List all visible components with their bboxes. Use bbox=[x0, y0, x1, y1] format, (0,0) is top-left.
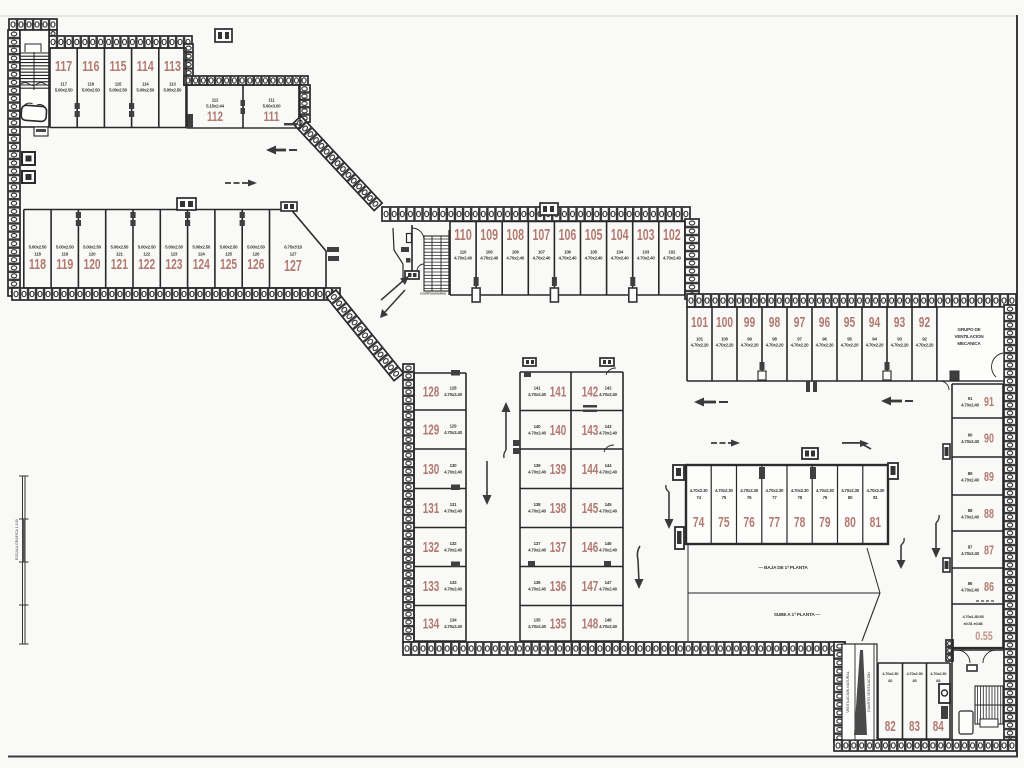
svg-text:112: 112 bbox=[207, 108, 223, 124]
svg-text:142: 142 bbox=[605, 385, 612, 390]
svg-text:120: 120 bbox=[84, 256, 101, 273]
svg-text:111: 111 bbox=[268, 98, 275, 103]
svg-text:5.00x2.50: 5.00x2.50 bbox=[138, 245, 156, 250]
svg-text:132: 132 bbox=[450, 541, 457, 546]
svg-text:98: 98 bbox=[769, 314, 780, 331]
svg-text:126: 126 bbox=[247, 256, 264, 273]
svg-text:5.00x2.50: 5.00x2.50 bbox=[56, 245, 74, 250]
svg-text:142: 142 bbox=[582, 384, 599, 400]
svg-text:98: 98 bbox=[772, 337, 777, 342]
svg-text:4.70x2.40: 4.70x2.40 bbox=[528, 392, 546, 397]
svg-text:140: 140 bbox=[550, 423, 567, 439]
svg-text:4.70x2.30: 4.70x2.30 bbox=[690, 488, 708, 493]
svg-text:4.70x2.20: 4.70x2.20 bbox=[791, 343, 809, 348]
svg-text:4.70x2.30: 4.70x2.30 bbox=[882, 671, 899, 676]
svg-text:6.75x3'18: 6.75x3'18 bbox=[284, 245, 302, 250]
svg-text:81: 81 bbox=[873, 495, 878, 500]
svg-text:4.70x2.40: 4.70x2.40 bbox=[599, 469, 617, 474]
svg-text:0.55: 0.55 bbox=[975, 631, 993, 643]
svg-text:89: 89 bbox=[984, 469, 994, 484]
svg-text:74: 74 bbox=[693, 514, 705, 531]
svg-text:143: 143 bbox=[582, 423, 599, 439]
svg-text:87: 87 bbox=[968, 545, 973, 550]
svg-text:138: 138 bbox=[534, 502, 541, 507]
svg-text:104: 104 bbox=[611, 227, 629, 244]
svg-text:CUARTO BASURAS: CUARTO BASURAS bbox=[420, 292, 446, 296]
svg-text:135: 135 bbox=[550, 616, 567, 632]
svg-text:141: 141 bbox=[550, 384, 567, 400]
svg-text:4.70x2.40: 4.70x2.40 bbox=[444, 548, 462, 553]
svg-text:91: 91 bbox=[968, 396, 973, 401]
svg-text:116: 116 bbox=[82, 58, 99, 75]
svg-text:131: 131 bbox=[423, 501, 440, 517]
svg-text:100: 100 bbox=[716, 314, 733, 331]
svg-text:107: 107 bbox=[533, 227, 551, 244]
svg-text:83: 83 bbox=[909, 719, 920, 735]
svg-text:4.70x2.30: 4.70x2.30 bbox=[740, 488, 758, 493]
svg-text:VENTILACION NATURAL: VENTILACION NATURAL bbox=[846, 671, 850, 712]
svg-text:108: 108 bbox=[506, 227, 524, 244]
svg-text:4.70x2.40: 4.70x2.40 bbox=[961, 515, 979, 520]
svg-text:91: 91 bbox=[984, 394, 994, 409]
svg-text:139: 139 bbox=[534, 463, 541, 468]
svg-text:131: 131 bbox=[450, 502, 457, 507]
svg-text:4.70x2.20: 4.70x2.20 bbox=[816, 343, 834, 348]
svg-text:114: 114 bbox=[137, 58, 155, 75]
svg-text:4.70x2.40: 4.70x2.40 bbox=[444, 430, 462, 435]
svg-text:MECANICA: MECANICA bbox=[957, 341, 981, 346]
svg-text:4.70x2.40: 4.70x2.40 bbox=[599, 548, 617, 553]
svg-text:128: 128 bbox=[450, 386, 457, 391]
svg-text:148: 148 bbox=[605, 617, 612, 622]
svg-text:4.70x2.40: 4.70x2.40 bbox=[637, 256, 655, 261]
svg-text:90: 90 bbox=[968, 433, 973, 438]
svg-text:5.00x2.50: 5.00x2.50 bbox=[247, 245, 265, 250]
svg-text:93: 93 bbox=[894, 314, 905, 331]
svg-text:74: 74 bbox=[696, 495, 701, 500]
svg-text:75: 75 bbox=[722, 495, 727, 500]
svg-text:4.70x2.20: 4.70x2.20 bbox=[716, 343, 734, 348]
svg-text:5.00x2.50: 5.00x2.50 bbox=[192, 245, 210, 250]
svg-text:4.70x2.40: 4.70x2.40 bbox=[528, 430, 546, 435]
svg-text:97: 97 bbox=[794, 314, 805, 331]
svg-text:4.70x2.30: 4.70x2.30 bbox=[867, 488, 885, 493]
svg-text:78: 78 bbox=[794, 514, 805, 531]
svg-text:134: 134 bbox=[423, 616, 440, 632]
svg-text:121: 121 bbox=[111, 256, 128, 273]
svg-text:4.70x2.20: 4.70x2.20 bbox=[866, 343, 884, 348]
svg-text:146: 146 bbox=[605, 541, 612, 546]
svg-text:140: 140 bbox=[534, 424, 541, 429]
svg-text:136: 136 bbox=[534, 580, 541, 585]
svg-text:147: 147 bbox=[582, 579, 599, 595]
svg-text:83: 83 bbox=[912, 678, 917, 683]
svg-text:VENTILACION: VENTILACION bbox=[955, 334, 985, 339]
svg-text:145: 145 bbox=[605, 502, 612, 507]
svg-text:135: 135 bbox=[534, 617, 541, 622]
svg-text:94: 94 bbox=[869, 314, 881, 331]
svg-text:133: 133 bbox=[423, 579, 440, 595]
svg-text:117: 117 bbox=[60, 82, 67, 87]
svg-text:4.70x2.40: 4.70x2.40 bbox=[961, 403, 979, 408]
svg-text:4.70x2.40: 4.70x2.40 bbox=[528, 509, 546, 514]
svg-text:4.70x2.40: 4.70x2.40 bbox=[444, 392, 462, 397]
svg-text:4.70x1.85 85: 4.70x1.85 85 bbox=[963, 614, 985, 619]
svg-text:4.70x2.40: 4.70x2.40 bbox=[961, 588, 979, 593]
svg-text:124: 124 bbox=[193, 256, 211, 273]
svg-text:144: 144 bbox=[605, 463, 612, 468]
svg-text:105: 105 bbox=[585, 227, 603, 244]
svg-text:101: 101 bbox=[696, 337, 703, 342]
svg-text:129: 129 bbox=[423, 423, 440, 439]
svg-text:95: 95 bbox=[847, 337, 852, 342]
svg-text:4.70x2.30: 4.70x2.30 bbox=[766, 488, 784, 493]
svg-text:133: 133 bbox=[450, 580, 457, 585]
svg-text:5.00x2.50: 5.00x2.50 bbox=[165, 245, 183, 250]
svg-text:4.70x2.40: 4.70x2.40 bbox=[663, 256, 681, 261]
svg-text:4.70x2.20: 4.70x2.20 bbox=[741, 343, 759, 348]
svg-text:109: 109 bbox=[480, 227, 498, 244]
svg-text:88: 88 bbox=[984, 506, 994, 521]
svg-text:ESCALA GRAFICA 1:100: ESCALA GRAFICA 1:100 bbox=[15, 519, 19, 560]
svg-text:77: 77 bbox=[769, 514, 780, 531]
svg-text:5.00x2.50: 5.00x2.50 bbox=[109, 88, 127, 93]
svg-text:76: 76 bbox=[743, 514, 754, 531]
svg-text:148: 148 bbox=[582, 616, 599, 632]
svg-text:109: 109 bbox=[486, 250, 493, 255]
svg-text:CUARTO VENTILACION: CUARTO VENTILACION bbox=[867, 672, 871, 712]
svg-text:143: 143 bbox=[605, 424, 612, 429]
svg-text:116: 116 bbox=[88, 82, 95, 87]
svg-text:97: 97 bbox=[797, 337, 802, 342]
svg-text:99: 99 bbox=[744, 314, 755, 331]
svg-text:4.70x2.20: 4.70x2.20 bbox=[841, 343, 859, 348]
svg-text:4.70x2.40: 4.70x2.40 bbox=[961, 551, 979, 556]
svg-text:92: 92 bbox=[922, 337, 927, 342]
svg-text:4.70x2.30: 4.70x2.30 bbox=[907, 671, 924, 676]
svg-text:80: 80 bbox=[844, 514, 855, 531]
svg-text:92: 92 bbox=[919, 314, 930, 331]
svg-text:86: 86 bbox=[984, 579, 994, 594]
svg-text:84: 84 bbox=[933, 719, 944, 735]
svg-text:117: 117 bbox=[55, 58, 72, 75]
svg-text:4.70x2.40: 4.70x2.40 bbox=[532, 256, 550, 261]
svg-text:115: 115 bbox=[109, 58, 126, 75]
svg-text:134: 134 bbox=[450, 617, 457, 622]
svg-text:107: 107 bbox=[538, 250, 545, 255]
svg-text:4.70x2.40: 4.70x2.40 bbox=[585, 256, 603, 261]
svg-text:95: 95 bbox=[844, 314, 855, 331]
svg-text:4.70x2.40: 4.70x2.40 bbox=[444, 624, 462, 629]
svg-text:93: 93 bbox=[897, 337, 902, 342]
svg-text:4.70x2.40: 4.70x2.40 bbox=[559, 256, 577, 261]
svg-text:4.70x2.40: 4.70x2.40 bbox=[528, 469, 546, 474]
svg-text:4.70x2.20: 4.70x2.20 bbox=[916, 343, 934, 348]
svg-text:82: 82 bbox=[885, 719, 896, 735]
svg-text:114: 114 bbox=[142, 82, 149, 87]
svg-text:88: 88 bbox=[968, 508, 973, 513]
svg-text:103: 103 bbox=[637, 227, 655, 244]
svg-text:129: 129 bbox=[450, 424, 457, 429]
svg-text:141: 141 bbox=[534, 385, 541, 390]
svg-text:79: 79 bbox=[823, 495, 828, 500]
svg-text:79: 79 bbox=[819, 514, 830, 531]
svg-text:94: 94 bbox=[872, 337, 877, 342]
svg-text:118: 118 bbox=[29, 256, 46, 273]
svg-text:137: 137 bbox=[550, 540, 567, 556]
svg-text:4.70x2.40: 4.70x2.40 bbox=[528, 548, 546, 553]
svg-text:4.70x2.30: 4.70x2.30 bbox=[841, 488, 859, 493]
svg-text:103: 103 bbox=[642, 250, 649, 255]
svg-text:112: 112 bbox=[212, 98, 219, 103]
svg-text:86: 86 bbox=[968, 581, 973, 586]
svg-text:77: 77 bbox=[772, 495, 777, 500]
svg-text:89: 89 bbox=[968, 471, 973, 476]
svg-text:5.00x2.50: 5.00x2.50 bbox=[220, 245, 238, 250]
svg-text:75: 75 bbox=[718, 514, 729, 531]
svg-text:139: 139 bbox=[550, 462, 567, 478]
svg-text:99: 99 bbox=[747, 337, 752, 342]
svg-text:105: 105 bbox=[590, 250, 597, 255]
svg-text:5.00x2.50: 5.00x2.50 bbox=[82, 88, 100, 93]
svg-text:76: 76 bbox=[747, 495, 752, 500]
svg-text:4.70x2.30: 4.70x2.30 bbox=[791, 488, 809, 493]
svg-text:110: 110 bbox=[460, 250, 467, 255]
svg-text:125: 125 bbox=[220, 256, 237, 273]
svg-text:4.70x2.40: 4.70x2.40 bbox=[454, 256, 472, 261]
svg-text:123: 123 bbox=[165, 256, 182, 273]
svg-text:4.70x2.20: 4.70x2.20 bbox=[891, 343, 909, 348]
svg-text:5.00x2.50: 5.00x2.50 bbox=[164, 88, 182, 93]
svg-text:87: 87 bbox=[984, 543, 994, 558]
svg-text:100: 100 bbox=[721, 337, 728, 342]
svg-text:4.70x2.40: 4.70x2.40 bbox=[599, 509, 617, 514]
svg-text:5.00x2.50: 5.00x2.50 bbox=[55, 88, 73, 93]
svg-text:130: 130 bbox=[423, 462, 440, 478]
svg-text:4.70x2.40: 4.70x2.40 bbox=[599, 587, 617, 592]
svg-text:136: 136 bbox=[550, 579, 567, 595]
svg-text:4.70x2.40: 4.70x2.40 bbox=[528, 624, 546, 629]
svg-text:111: 111 bbox=[264, 108, 280, 124]
svg-text:110: 110 bbox=[454, 227, 472, 244]
svg-text:144: 144 bbox=[582, 462, 599, 478]
svg-text:138: 138 bbox=[550, 501, 567, 517]
svg-text:122: 122 bbox=[138, 256, 155, 273]
svg-text:4.70x2.40: 4.70x2.40 bbox=[599, 392, 617, 397]
svg-text:146: 146 bbox=[582, 540, 599, 556]
svg-text:— BAJA DE 1ª PLANTA: — BAJA DE 1ª PLANTA bbox=[758, 565, 808, 571]
svg-text:4.70x2.40: 4.70x2.40 bbox=[599, 430, 617, 435]
svg-text:147: 147 bbox=[605, 580, 612, 585]
svg-text:4.70x2.40: 4.70x2.40 bbox=[599, 624, 617, 629]
svg-text:84: 84 bbox=[936, 678, 941, 683]
svg-text:145: 145 bbox=[582, 501, 599, 517]
svg-text:4.70x2.20: 4.70x2.20 bbox=[691, 343, 709, 348]
svg-text:4.70x2.40: 4.70x2.40 bbox=[528, 587, 546, 592]
svg-text:4.70x2.40: 4.70x2.40 bbox=[480, 256, 498, 261]
svg-text:GRUPO DE: GRUPO DE bbox=[958, 327, 981, 332]
svg-text:108: 108 bbox=[512, 250, 519, 255]
svg-text:4.70x2.40: 4.70x2.40 bbox=[444, 469, 462, 474]
svg-text:4.70x2.30: 4.70x2.30 bbox=[816, 488, 834, 493]
svg-text:4.70x2.20: 4.70x2.20 bbox=[766, 343, 784, 348]
svg-text:4.70x2.30: 4.70x2.30 bbox=[930, 671, 947, 676]
svg-text:127: 127 bbox=[284, 258, 302, 275]
svg-text:106: 106 bbox=[559, 227, 577, 244]
svg-text:96: 96 bbox=[822, 337, 827, 342]
svg-text:113: 113 bbox=[169, 82, 176, 87]
svg-text:127: 127 bbox=[290, 252, 297, 257]
svg-text:±0.51 ±0.88: ±0.51 ±0.88 bbox=[964, 621, 984, 626]
svg-text:130: 130 bbox=[450, 463, 457, 468]
svg-text:4.70x2.40: 4.70x2.40 bbox=[611, 256, 629, 261]
svg-text:102: 102 bbox=[663, 227, 681, 244]
svg-text:106: 106 bbox=[564, 250, 571, 255]
svg-text:119: 119 bbox=[56, 256, 73, 273]
svg-text:5.00x2.50: 5.00x2.50 bbox=[136, 88, 154, 93]
svg-text:102: 102 bbox=[668, 250, 675, 255]
svg-text:4.70x2.40: 4.70x2.40 bbox=[506, 256, 524, 261]
svg-text:4.70x2.30: 4.70x2.30 bbox=[715, 488, 733, 493]
svg-text:104: 104 bbox=[616, 250, 623, 255]
svg-text:5.00x2.50: 5.00x2.50 bbox=[110, 245, 128, 250]
svg-text:113: 113 bbox=[164, 58, 181, 75]
svg-text:137: 137 bbox=[534, 541, 541, 546]
svg-text:80: 80 bbox=[848, 495, 853, 500]
svg-text:4.70x2.40: 4.70x2.40 bbox=[444, 509, 462, 514]
svg-text:5.00x2.50: 5.00x2.50 bbox=[83, 245, 101, 250]
svg-text:4.70x2.40: 4.70x2.40 bbox=[961, 439, 979, 444]
svg-text:90: 90 bbox=[984, 431, 994, 446]
svg-text:78: 78 bbox=[797, 495, 802, 500]
svg-text:101: 101 bbox=[691, 314, 708, 331]
svg-text:82: 82 bbox=[888, 678, 893, 683]
svg-text:4.70x2.40: 4.70x2.40 bbox=[444, 587, 462, 592]
svg-text:5.00x2.50: 5.00x2.50 bbox=[29, 245, 47, 250]
svg-text:96: 96 bbox=[819, 314, 830, 331]
svg-text:81: 81 bbox=[870, 514, 881, 531]
svg-text:128: 128 bbox=[423, 385, 440, 401]
svg-text:4.70x2.40: 4.70x2.40 bbox=[961, 478, 979, 483]
svg-text:132: 132 bbox=[423, 540, 440, 556]
svg-text:SUBE A 1ª PLANTA —: SUBE A 1ª PLANTA — bbox=[774, 612, 821, 618]
svg-text:115: 115 bbox=[115, 82, 122, 87]
